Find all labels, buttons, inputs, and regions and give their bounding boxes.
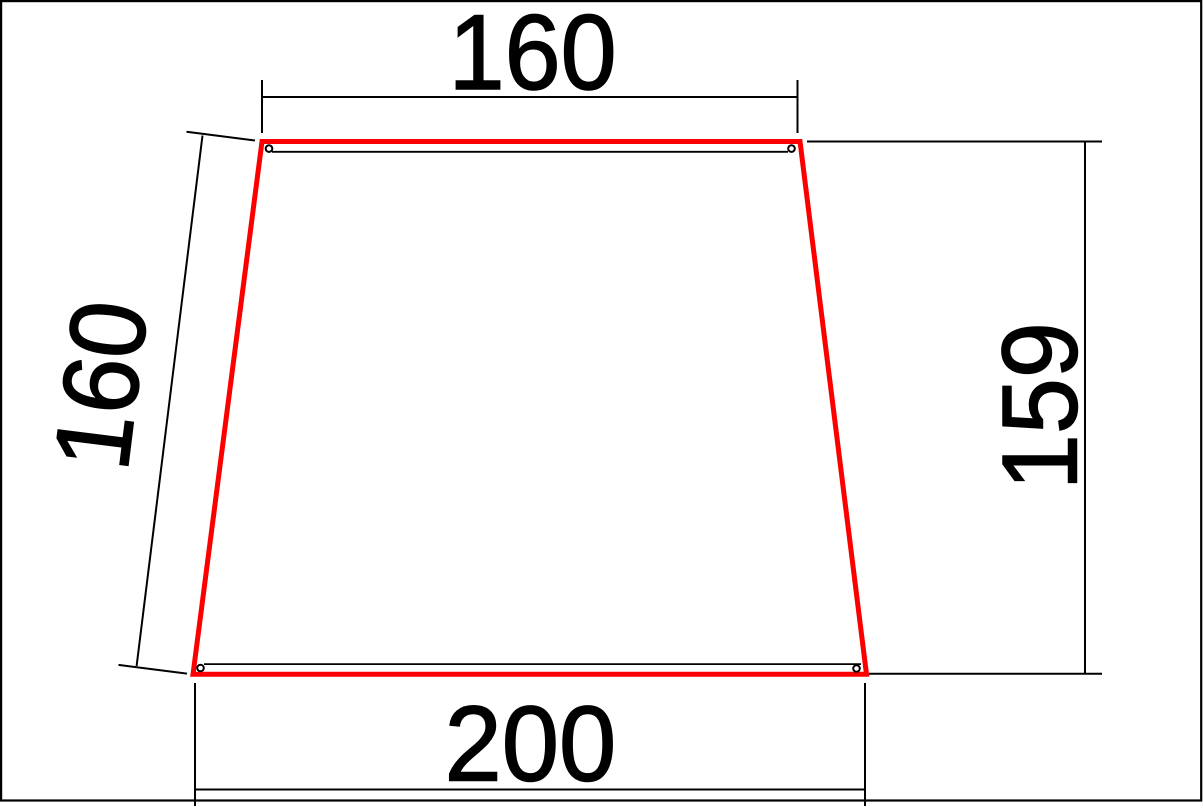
svg-text:159: 159 bbox=[981, 322, 1100, 490]
svg-text:160: 160 bbox=[32, 294, 171, 475]
svg-text:160: 160 bbox=[449, 0, 617, 113]
svg-text:200: 200 bbox=[445, 685, 617, 804]
